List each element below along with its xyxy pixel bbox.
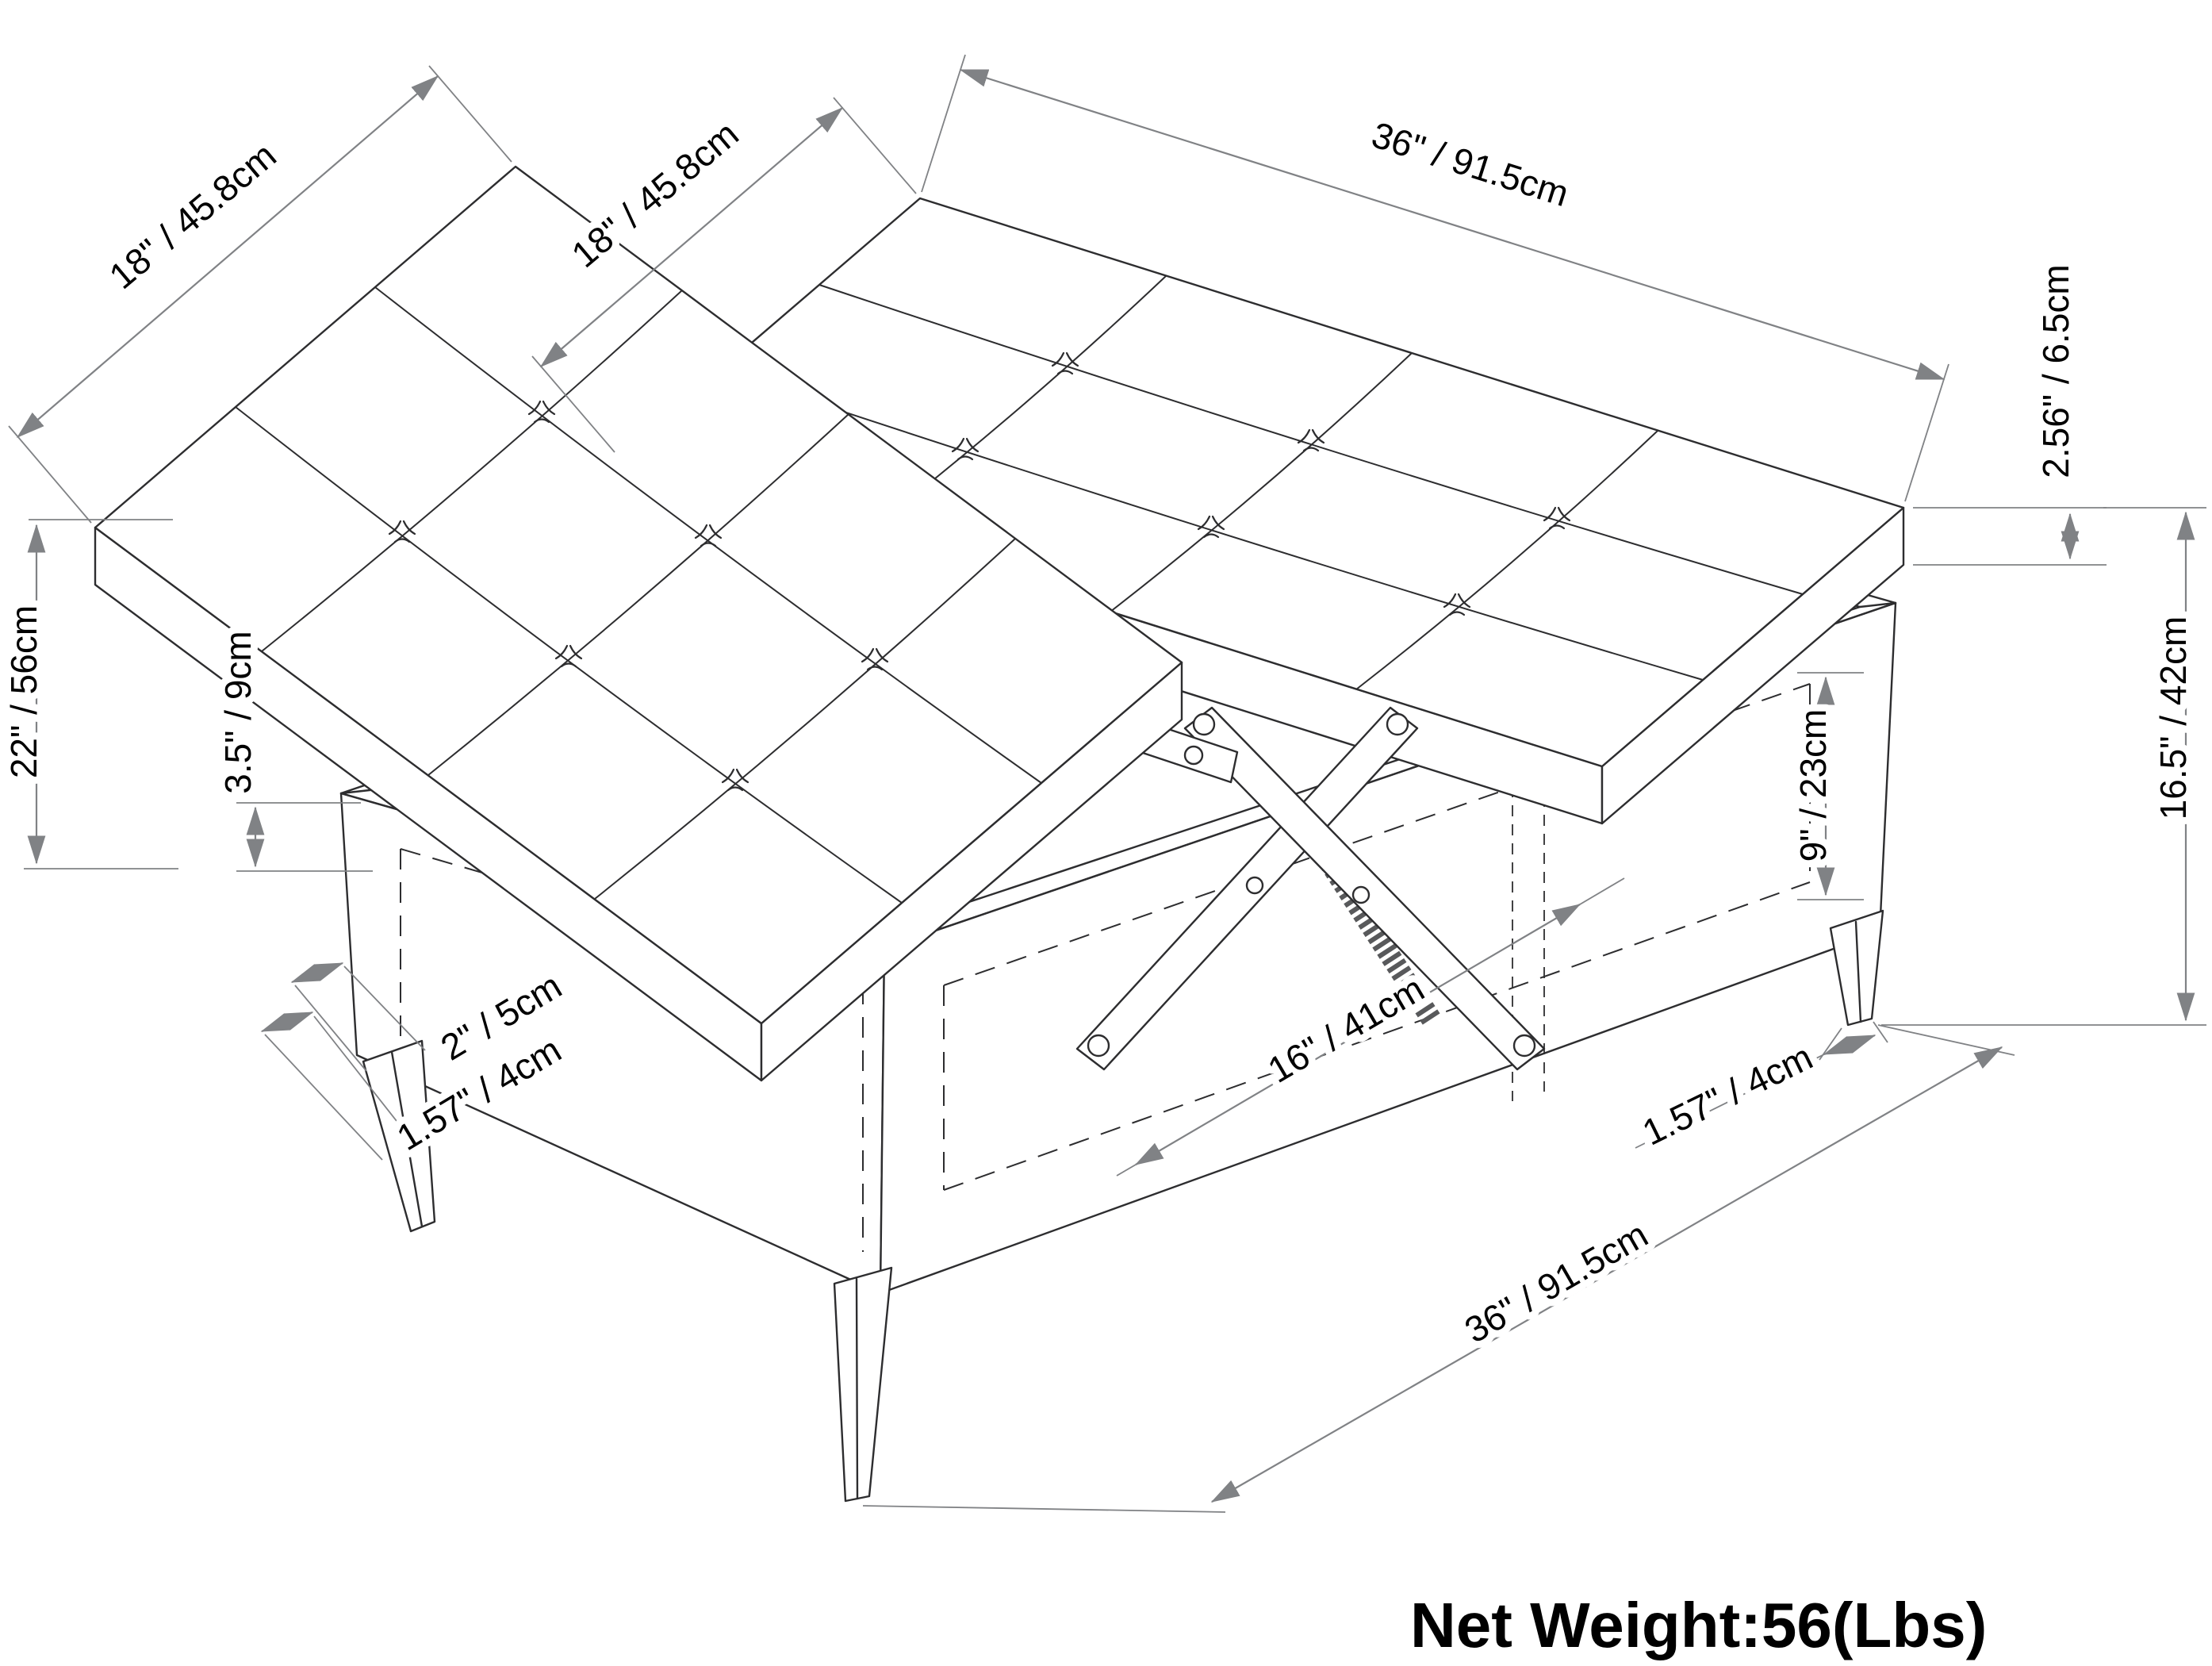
dimension-leg-bottom-width-right: 1.57" / 4cm bbox=[1635, 1022, 1888, 1154]
dimension-label-leg-clearance: 3.5" / 9cm bbox=[217, 631, 259, 794]
dimension-label-open-height-left: 22" / 56cm bbox=[3, 605, 44, 778]
dimension-label-lid-left-depth: 18" / 45.8cm bbox=[102, 134, 284, 297]
dimension-label-base-length: 36" / 91.5cm bbox=[1458, 1213, 1654, 1350]
technical-drawing: 18" / 45.8cm 18" / 45.8cm 36" / 91.5cm 2… bbox=[0, 0, 2212, 1666]
net-weight-label: Net Weight:56(Lbs) bbox=[1410, 1590, 1987, 1660]
dimension-label-lid-length: 36" / 91.5cm bbox=[1367, 113, 1574, 214]
leg-front bbox=[834, 1268, 891, 1501]
dimension-label-lid-thickness: 2.56" / 6.5cm bbox=[2035, 264, 2076, 478]
dimension-base-height: 16.5" / 42cm bbox=[1881, 508, 2206, 1025]
dimension-label-storage-depth: 9" / 23cm bbox=[1792, 709, 1834, 862]
dimension-lid-thickness: 2.56" / 6.5cm bbox=[1913, 264, 2107, 565]
diagram-page: 18" / 45.8cm 18" / 45.8cm 36" / 91.5cm 2… bbox=[0, 0, 2212, 1666]
dimension-label-base-height: 16.5" / 42cm bbox=[2153, 616, 2194, 820]
dimension-label-leg-bottom-width-right: 1.57" / 4cm bbox=[1636, 1036, 1819, 1154]
dimension-label-lid-right-depth: 18" / 45.8cm bbox=[564, 113, 746, 275]
